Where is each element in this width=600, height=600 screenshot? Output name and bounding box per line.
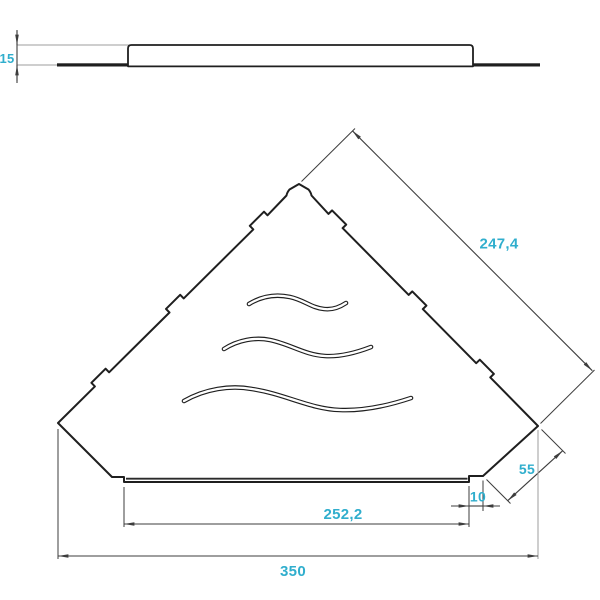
dimension-247-4-extension-corner bbox=[541, 370, 595, 424]
dimension-55-line bbox=[508, 451, 563, 501]
dimension-55-extension-top bbox=[542, 430, 566, 454]
side-view: 15 bbox=[0, 30, 540, 83]
top-view bbox=[58, 184, 538, 482]
dimension-252-2: 252,2 bbox=[124, 487, 469, 527]
cad-drawing-canvas: 15 247,4 55 bbox=[0, 0, 600, 600]
dimension-55-label: 55 bbox=[519, 461, 535, 477]
dimension-247-4-extension-apex bbox=[302, 129, 356, 182]
side-view-left-flange bbox=[57, 63, 128, 66]
dimension-252-2-label: 252,2 bbox=[323, 506, 362, 523]
side-view-right-flange bbox=[473, 63, 540, 66]
corner-shelf-technical-drawing: 15 247,4 55 bbox=[0, 0, 600, 600]
dimension-10: 10 bbox=[451, 481, 500, 528]
dimension-15: 15 bbox=[0, 30, 17, 83]
dimension-55-extension-bottom bbox=[487, 480, 511, 504]
dimension-350-label: 350 bbox=[280, 563, 306, 580]
dimension-15-label: 15 bbox=[0, 51, 15, 66]
dimension-247-4-label: 247,4 bbox=[479, 236, 518, 253]
dimension-10-label: 10 bbox=[470, 489, 486, 505]
side-view-body-profile bbox=[128, 45, 473, 66]
shelf-outline bbox=[58, 184, 538, 482]
